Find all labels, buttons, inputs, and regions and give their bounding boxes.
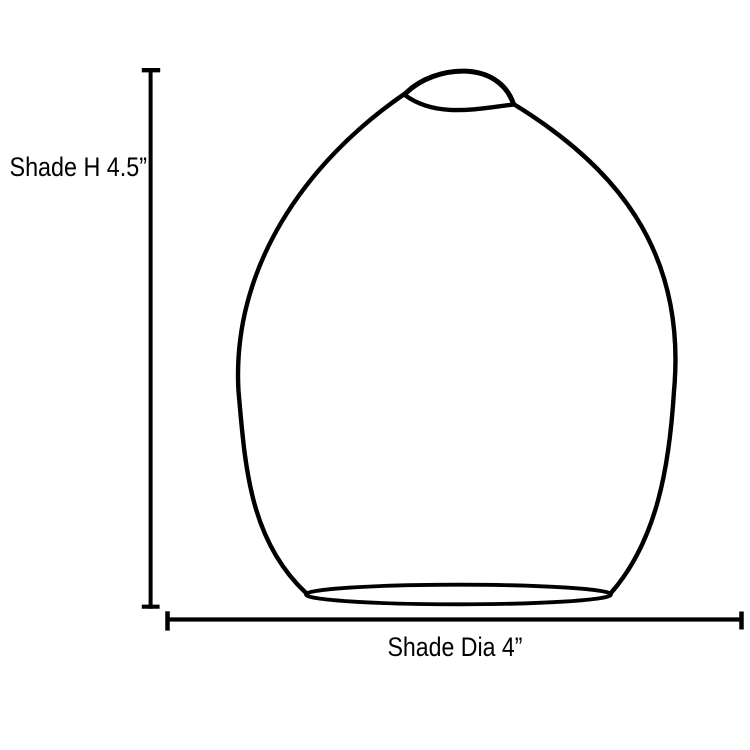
svg-text:Shade Dia 4”: Shade Dia 4” <box>388 632 523 662</box>
svg-text:Shade H 4.5”: Shade H 4.5” <box>10 152 148 182</box>
